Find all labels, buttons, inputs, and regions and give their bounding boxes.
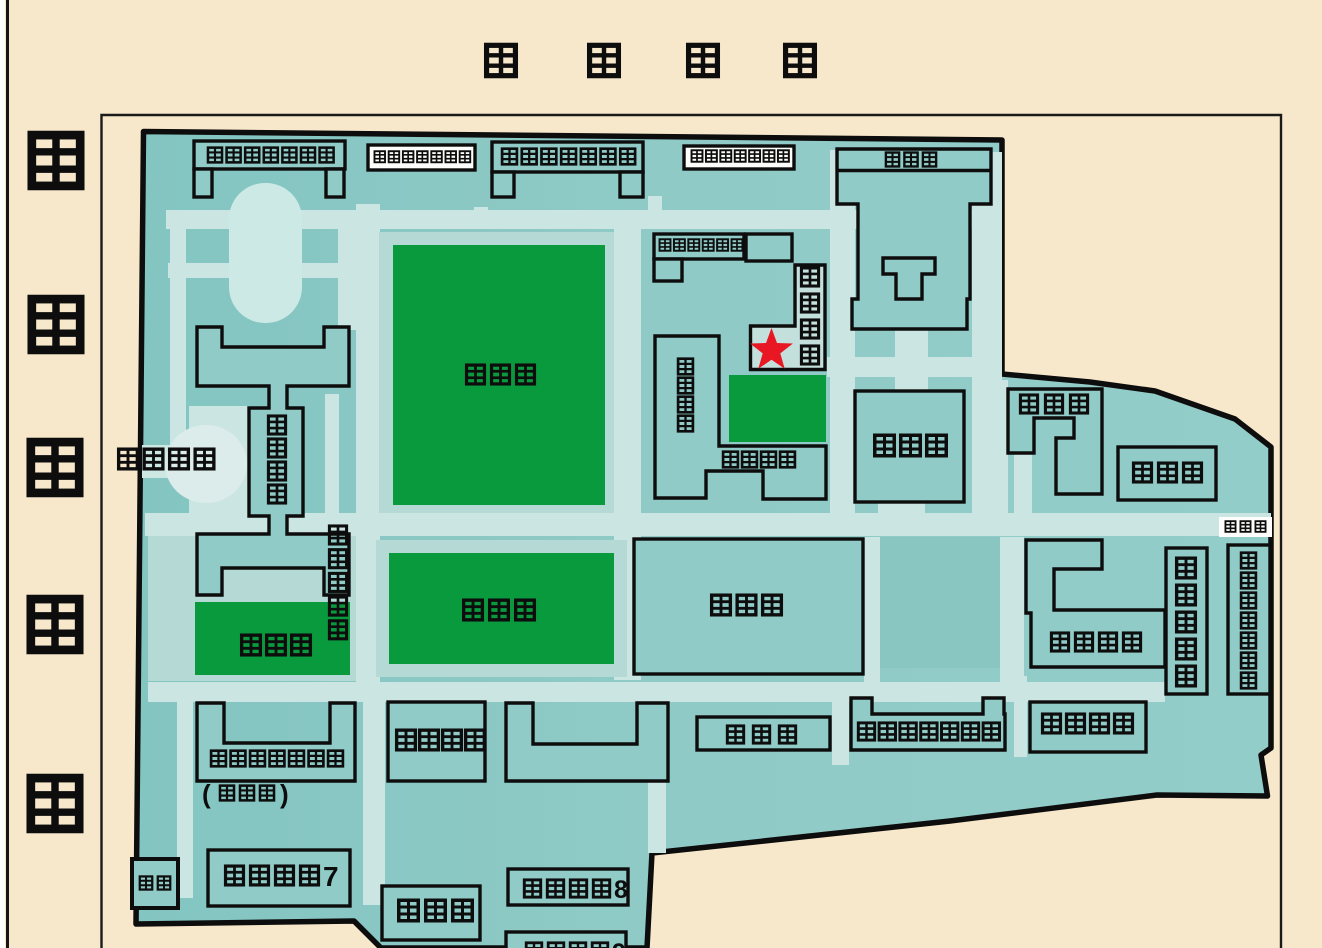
svg-text:8: 8 bbox=[614, 876, 628, 904]
svg-text:9: 9 bbox=[612, 939, 626, 948]
svg-text:): ) bbox=[280, 779, 289, 809]
svg-text:(: ( bbox=[202, 779, 211, 809]
svg-text:7: 7 bbox=[323, 861, 339, 892]
